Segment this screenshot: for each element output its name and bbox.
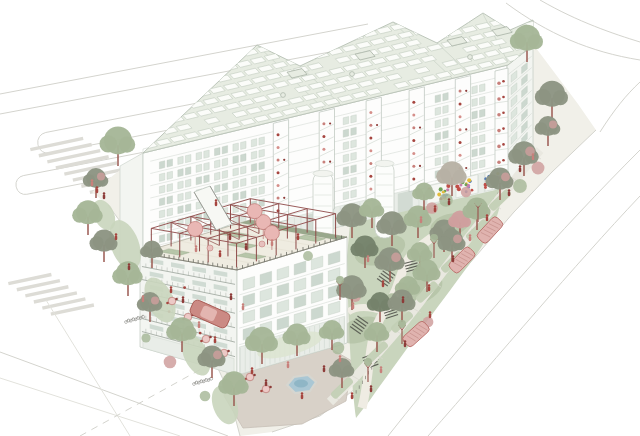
roof-table [259, 241, 265, 247]
person [219, 250, 222, 257]
balcony-plant [412, 126, 415, 129]
person [404, 340, 407, 347]
balcony-plant [412, 165, 415, 168]
shrub [141, 333, 150, 342]
person [142, 295, 145, 302]
balcony-plant [497, 160, 501, 164]
person [452, 255, 455, 262]
balcony-plant [412, 152, 415, 155]
person [271, 239, 274, 246]
person [402, 296, 405, 303]
illustration-stage [0, 0, 640, 436]
person [519, 165, 522, 172]
person [352, 302, 355, 309]
person [96, 186, 99, 193]
balcony-stack [409, 87, 424, 192]
roof-vent [468, 55, 473, 60]
balcony-plant [459, 128, 462, 131]
balcony-plant [369, 188, 372, 191]
person [103, 192, 106, 199]
person [370, 385, 373, 392]
person [91, 179, 94, 186]
balcony-plant [369, 111, 372, 114]
shrub [332, 342, 345, 355]
person [297, 233, 300, 240]
person [486, 214, 489, 221]
person [448, 198, 451, 205]
balcony-plant [412, 139, 415, 142]
person [339, 355, 342, 362]
balcony-plant [369, 124, 372, 127]
balcony-plant [277, 146, 280, 149]
balcony-plant [412, 101, 415, 104]
balcony-plant [277, 184, 280, 187]
person [380, 366, 383, 373]
balcony-plant [369, 137, 372, 140]
person [230, 293, 233, 300]
person [115, 233, 118, 240]
balcony-plant [459, 115, 462, 118]
person [367, 255, 370, 262]
balcony-plant [369, 175, 372, 178]
person [198, 321, 201, 328]
balcony-plant [277, 171, 280, 174]
person [301, 392, 304, 399]
balcony-plant [277, 159, 280, 162]
person [428, 284, 431, 291]
person [229, 233, 232, 240]
person [195, 245, 198, 252]
balcony-plant [322, 148, 325, 151]
person [287, 361, 290, 368]
person [469, 234, 472, 241]
person [508, 189, 511, 196]
walkway-figure [183, 286, 186, 289]
axonometric-site-illustration [0, 0, 640, 436]
balcony-plant [322, 135, 325, 138]
shrub [439, 193, 453, 207]
balcony-plant [277, 133, 280, 136]
balcony-plant [459, 154, 462, 157]
balcony-plant [459, 102, 462, 105]
person [420, 216, 423, 223]
balcony-plant [322, 122, 325, 125]
balcony-plant [497, 113, 501, 117]
shrub [164, 356, 177, 369]
person [323, 365, 326, 372]
person [251, 367, 254, 374]
balcony-plant [497, 97, 501, 101]
shrub [461, 187, 471, 197]
balcony-plant [277, 197, 280, 200]
zebra-crosswalk [8, 273, 94, 316]
person [532, 153, 535, 160]
balcony-plant [459, 141, 462, 144]
shrub [513, 179, 527, 193]
shrub [200, 391, 211, 402]
person [265, 379, 268, 386]
person [351, 392, 354, 399]
person [242, 303, 245, 310]
balcony-stack [273, 120, 288, 224]
person [128, 263, 131, 270]
walkway-figure [199, 332, 202, 335]
roof-table [207, 245, 213, 251]
balcony-plant [497, 129, 501, 133]
shrub [303, 251, 313, 261]
person [182, 296, 185, 303]
balcony-plant [322, 160, 325, 163]
person [215, 199, 218, 206]
balcony-plant [412, 113, 415, 116]
balcony-plant [497, 145, 501, 149]
person [170, 286, 173, 293]
roof-vent [350, 72, 355, 77]
person [434, 205, 437, 212]
balcony-plant [369, 162, 372, 165]
balcony-plant [459, 90, 462, 93]
bike-rack [192, 376, 213, 385]
balcony-plant [497, 81, 501, 85]
person [214, 336, 217, 343]
roof-vent [281, 93, 286, 98]
person [245, 243, 248, 250]
balcony-plant [412, 178, 415, 181]
person [382, 280, 385, 287]
person [429, 311, 432, 318]
balcony-plant [369, 149, 372, 152]
